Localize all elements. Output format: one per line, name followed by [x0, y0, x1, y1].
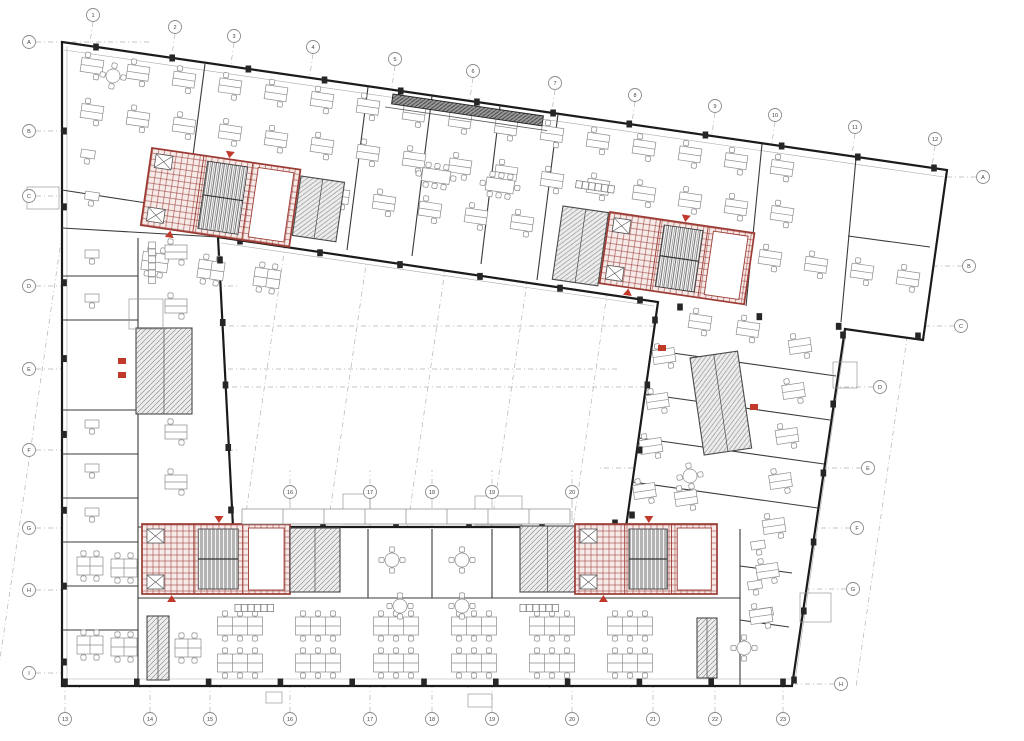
- grid-bubble: C: [955, 320, 968, 333]
- grid-bubble: 5: [389, 53, 402, 66]
- grid-bubble: 9: [709, 100, 722, 113]
- service-core-northwest: [292, 176, 344, 242]
- svg-text:15: 15: [207, 717, 213, 723]
- svg-text:B: B: [967, 264, 971, 270]
- grid-bubble: 19: [486, 486, 499, 499]
- svg-text:12: 12: [932, 137, 938, 143]
- svg-text:19: 19: [489, 717, 495, 723]
- grid-bubble: F: [851, 522, 864, 535]
- svg-text:4: 4: [311, 45, 314, 51]
- grid-bubble: G: [847, 583, 860, 596]
- svg-text:16: 16: [287, 490, 293, 496]
- grid-bubble: 18: [426, 713, 439, 726]
- desk-cluster: [530, 648, 575, 678]
- desk-cluster: [296, 648, 341, 678]
- service-core-northeast: [552, 206, 608, 286]
- grid-bubble: 14: [144, 713, 157, 726]
- grid-bubble: 18: [426, 486, 439, 499]
- grid-bubble: 8: [629, 89, 642, 102]
- stair-shaft-southeast: [697, 618, 717, 678]
- wc-core-west: [136, 328, 192, 414]
- svg-text:D: D: [878, 385, 882, 391]
- desk-cluster: [530, 611, 575, 641]
- svg-text:18: 18: [429, 717, 435, 723]
- grid-bubble: I: [23, 667, 36, 680]
- grid-bubble: B: [23, 125, 36, 138]
- grid-bubble: 13: [59, 713, 72, 726]
- grid-bubble: A: [977, 171, 990, 184]
- svg-text:16: 16: [287, 717, 293, 723]
- grid-bubble: G: [23, 522, 36, 535]
- svg-text:5: 5: [393, 57, 396, 63]
- highlighted-stair-core-south: [575, 516, 717, 602]
- svg-text:A: A: [27, 40, 31, 46]
- locker-bank: [149, 242, 156, 284]
- svg-text:19: 19: [489, 490, 495, 496]
- svg-text:1: 1: [91, 13, 94, 19]
- svg-text:C: C: [959, 324, 963, 330]
- desk-cluster: [296, 611, 341, 641]
- locker-bank: [235, 605, 274, 612]
- svg-text:3: 3: [232, 34, 235, 40]
- grid-bubble: F: [23, 444, 36, 457]
- svg-text:10: 10: [772, 113, 778, 119]
- desk-cluster: [452, 611, 497, 641]
- grid-bubble: E: [862, 462, 875, 475]
- grid-bubble: 17: [364, 486, 377, 499]
- svg-text:H: H: [27, 588, 31, 594]
- grid-bubble: 10: [769, 109, 782, 122]
- desk-cluster: [218, 648, 263, 678]
- grid-bubble: C: [23, 190, 36, 203]
- desk-cluster: [374, 648, 419, 678]
- svg-text:9: 9: [713, 104, 716, 110]
- grid-bubble: 16: [284, 486, 297, 499]
- svg-text:G: G: [27, 526, 31, 532]
- desk-cluster: [218, 611, 263, 641]
- svg-text:E: E: [866, 466, 870, 472]
- svg-text:22: 22: [712, 717, 718, 723]
- grid-bubble: 3: [228, 30, 241, 43]
- svg-text:11: 11: [852, 125, 858, 131]
- grid-bubble: 20: [566, 713, 579, 726]
- locker-bank: [520, 605, 559, 612]
- desk-cluster: [252, 261, 282, 295]
- stair-shaft-southwest: [147, 616, 169, 680]
- grid-bubble: 2: [169, 21, 182, 34]
- grid-bubble: 7: [549, 77, 562, 90]
- dimension-strip: [242, 509, 570, 524]
- svg-text:6: 6: [471, 69, 474, 75]
- desk-cluster: [452, 648, 497, 678]
- grid-bubble: D: [874, 381, 887, 394]
- grid-bubble: 4: [307, 41, 320, 54]
- grid-bubble: H: [835, 678, 848, 691]
- grid-bubble: 16: [284, 713, 297, 726]
- svg-text:13: 13: [62, 717, 68, 723]
- grid-bubble: E: [23, 363, 36, 376]
- grid-bubble: 17: [364, 713, 377, 726]
- grid-bubble: D: [23, 280, 36, 293]
- service-core-south: [520, 526, 575, 592]
- highlighted-stair-core-southwest: [142, 516, 290, 602]
- svg-text:E: E: [27, 367, 31, 373]
- svg-text:A: A: [981, 175, 985, 181]
- svg-text:14: 14: [147, 717, 153, 723]
- floor-plan: Office building floor plan — furniture l…: [0, 0, 1024, 741]
- svg-text:2: 2: [173, 25, 176, 31]
- grid-bubble: 15: [204, 713, 217, 726]
- svg-text:B: B: [27, 129, 31, 135]
- svg-text:7: 7: [553, 81, 556, 87]
- floor-plan-canvas: 1234567891011121314151617181920212223ABC…: [0, 0, 1024, 741]
- svg-text:D: D: [27, 284, 31, 290]
- grid-bubble: H: [23, 584, 36, 597]
- grid-bubble: 6: [467, 65, 480, 78]
- desk-cluster: [374, 611, 419, 641]
- svg-text:G: G: [851, 587, 855, 593]
- grid-bubble: 21: [647, 713, 660, 726]
- svg-text:H: H: [839, 682, 843, 688]
- grid-bubble: A: [23, 36, 36, 49]
- svg-text:17: 17: [367, 490, 373, 496]
- svg-text:17: 17: [367, 717, 373, 723]
- grid-bubble: B: [963, 260, 976, 273]
- svg-text:20: 20: [569, 490, 575, 496]
- svg-text:21: 21: [650, 717, 656, 723]
- svg-text:C: C: [27, 194, 31, 200]
- grid-bubble: 23: [777, 713, 790, 726]
- desk-cluster: [608, 611, 653, 641]
- svg-text:18: 18: [429, 490, 435, 496]
- svg-text:20: 20: [569, 717, 575, 723]
- grid-bubble: 22: [709, 713, 722, 726]
- desk-cluster: [608, 648, 653, 678]
- svg-text:8: 8: [633, 93, 636, 99]
- grid-bubble: 19: [486, 713, 499, 726]
- grid-bubble: 11: [849, 121, 862, 134]
- service-core-southwest: [290, 528, 340, 592]
- grid-bubble: 12: [929, 133, 942, 146]
- grid-bubble: 20: [566, 486, 579, 499]
- svg-text:23: 23: [780, 717, 786, 723]
- grid-bubble: 1: [87, 9, 100, 22]
